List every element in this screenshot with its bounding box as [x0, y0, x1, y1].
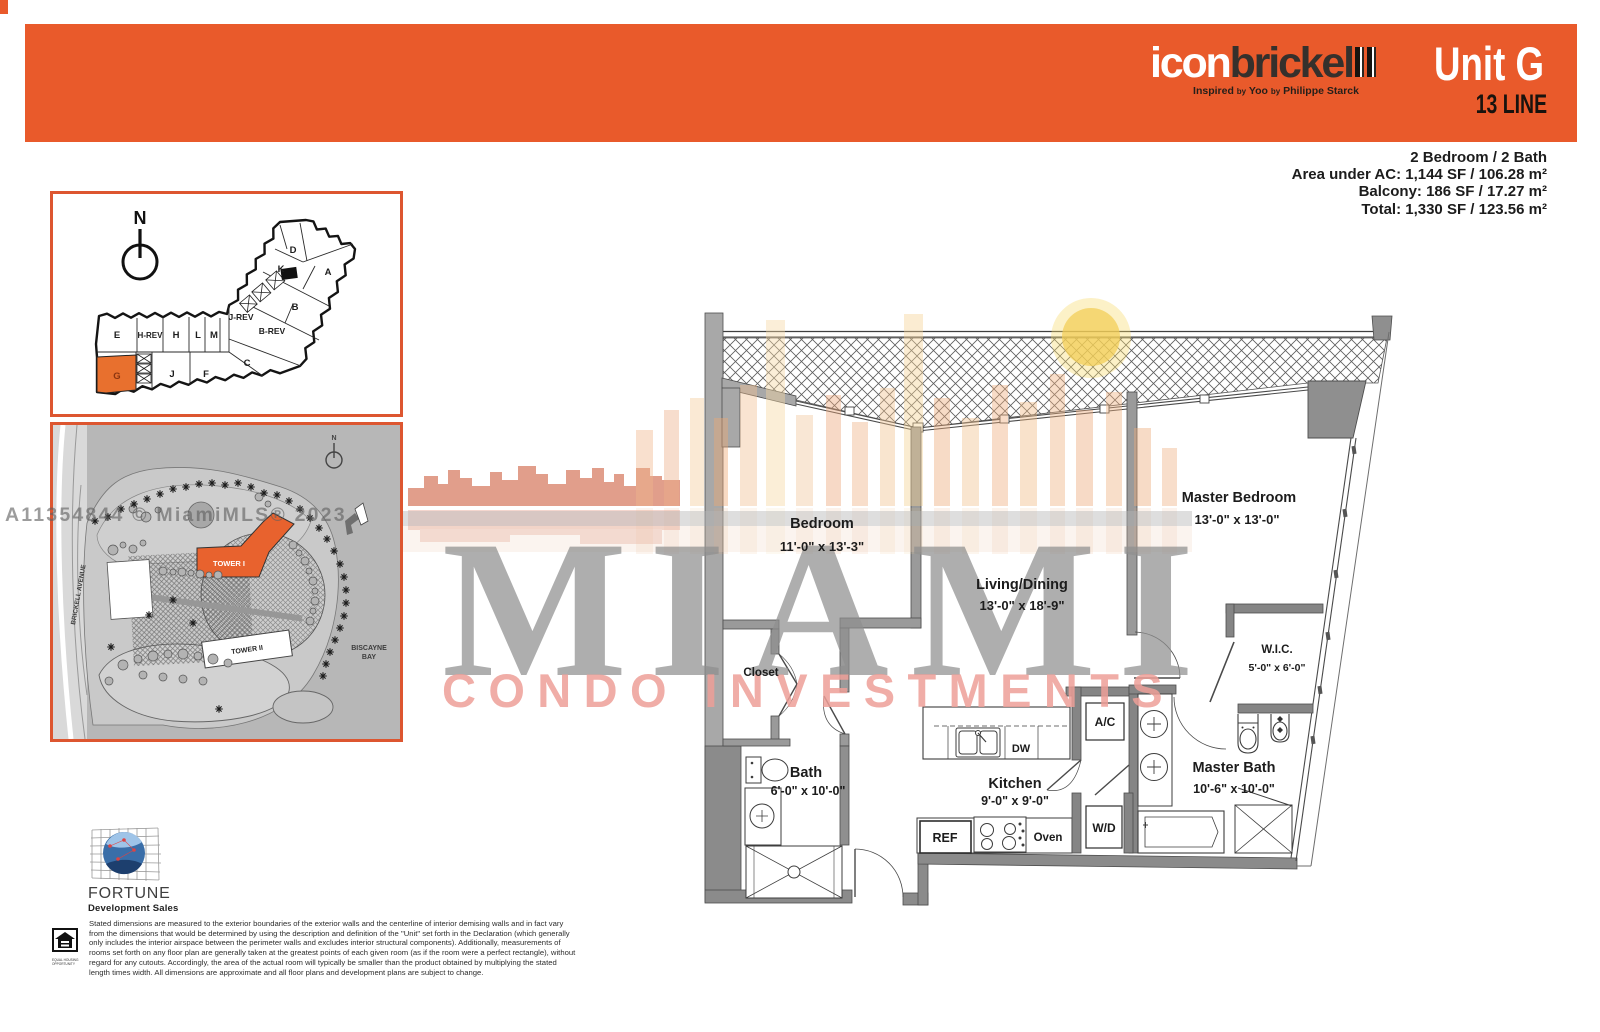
svg-text:N: N — [331, 435, 336, 442]
svg-text:TOWER I: TOWER I — [213, 559, 245, 568]
svg-text:DW: DW — [1012, 743, 1031, 755]
svg-text:13'-0" x 18'-9": 13'-0" x 18'-9" — [979, 598, 1064, 613]
svg-text:Kitchen: Kitchen — [988, 776, 1041, 792]
svg-text:C: C — [244, 358, 251, 369]
svg-text:Oven: Oven — [1034, 832, 1063, 844]
svg-text:B-REV: B-REV — [259, 326, 286, 336]
svg-text:5'-0" x 6'-0": 5'-0" x 6'-0" — [1249, 662, 1306, 674]
svg-text:W.I.C.: W.I.C. — [1261, 644, 1292, 656]
svg-text:G: G — [113, 371, 120, 382]
svg-text:Closet: Closet — [743, 667, 778, 679]
svg-text:M: M — [210, 330, 218, 341]
svg-text:H: H — [173, 330, 180, 341]
svg-text:B: B — [292, 302, 299, 313]
svg-text:13'-0" x 13'-0": 13'-0" x 13'-0" — [1194, 512, 1279, 527]
svg-text:H-REV: H-REV — [138, 331, 164, 340]
svg-text:CONDO INVESTMENTS: CONDO INVESTMENTS — [442, 664, 1175, 717]
svg-text:L: L — [195, 330, 201, 341]
svg-text:N: N — [134, 208, 147, 228]
svg-text:6'-0" x 10'-0": 6'-0" x 10'-0" — [771, 784, 846, 798]
svg-text:D: D — [290, 245, 297, 256]
svg-text:A: A — [325, 267, 332, 278]
svg-text:Living/Dining: Living/Dining — [976, 577, 1068, 593]
svg-text:Bath: Bath — [790, 765, 822, 781]
svg-text:9'-0" x 9'-0": 9'-0" x 9'-0" — [981, 794, 1049, 808]
svg-text:A/C: A/C — [1095, 715, 1116, 729]
svg-text:Master Bedroom: Master Bedroom — [1182, 490, 1296, 506]
svg-text:11'-0" x 13'-3": 11'-0" x 13'-3" — [780, 539, 864, 554]
svg-text:Bedroom: Bedroom — [790, 516, 854, 532]
svg-text:K: K — [278, 264, 285, 275]
svg-text:F: F — [203, 369, 209, 380]
svg-text:Master Bath: Master Bath — [1193, 760, 1276, 776]
svg-text:J-REV: J-REV — [228, 312, 253, 322]
svg-text:BISCAYNE: BISCAYNE — [351, 645, 387, 652]
svg-text:10'-6" x 10'-0": 10'-6" x 10'-0" — [1193, 782, 1275, 796]
svg-text:BAY: BAY — [362, 654, 376, 661]
svg-text:W/D: W/D — [1092, 821, 1116, 835]
svg-text:E: E — [114, 330, 120, 341]
svg-text:REF: REF — [933, 831, 958, 845]
svg-text:J: J — [169, 369, 174, 380]
